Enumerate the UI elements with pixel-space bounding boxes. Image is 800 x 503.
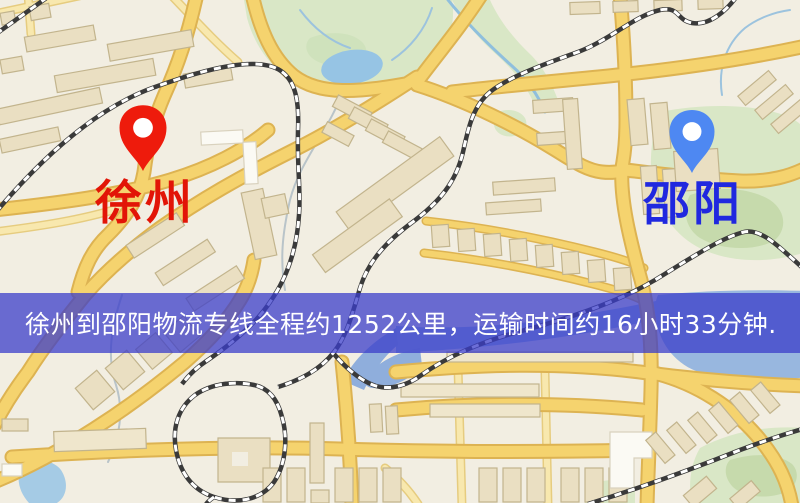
route-info-banner: 徐州到邵阳物流专线全程约1252公里，运输时间约16小时33分钟.: [0, 293, 800, 353]
logistics-route-map: 徐州 邵阳 徐州到邵阳物流专线全程约1252公里，运输时间约16小时33分钟.: [0, 0, 800, 503]
destination-city-label: 邵阳: [634, 181, 752, 228]
destination-pin-icon: [0, 0, 800, 503]
origin-city-label: 徐州: [84, 180, 206, 227]
route-info-text: 徐州到邵阳物流专线全程约1252公里，运输时间约16小时33分钟.: [25, 305, 777, 341]
